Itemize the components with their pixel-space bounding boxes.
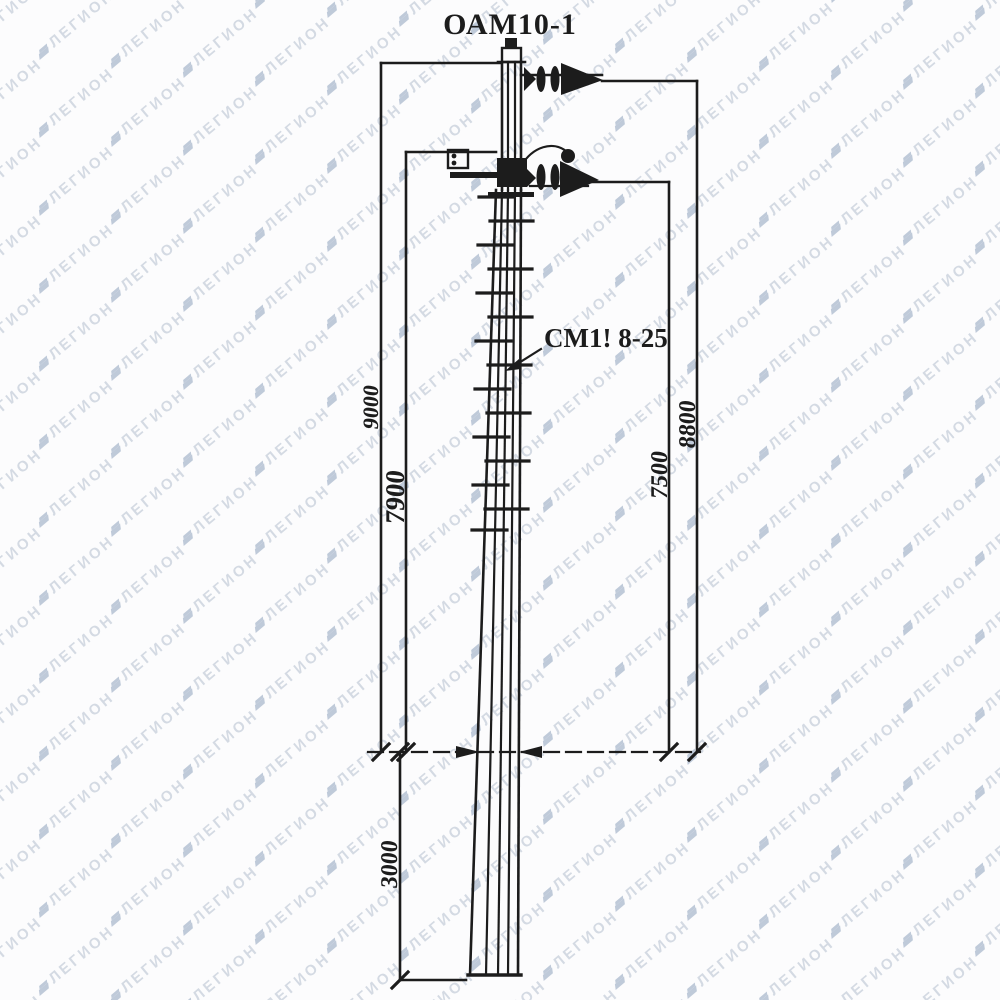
dimension-label-7900: 7900	[380, 469, 410, 526]
dimension-below-ground: 3000	[377, 744, 466, 988]
pole-step-ticks	[472, 197, 533, 530]
lower-strain-insulator-assembly	[448, 146, 599, 197]
dimension-right-inner: 7500	[588, 182, 677, 760]
dimension-label-7500: 7500	[647, 449, 673, 501]
dimension-label-3000: 3000	[377, 839, 403, 890]
dimension-label-8800: 8800	[675, 399, 701, 450]
disc-insulator	[537, 66, 546, 92]
scanned-drawing-page: ЛЕГИОНЛЕГИОНЛЕГИОНЛЕГИОНЛЕГИОНЛЕГИОНЛЕГИ…	[0, 0, 1000, 1000]
dimension-label-9000: 9000	[358, 383, 383, 430]
dimension-left-inner: 7900	[380, 152, 496, 760]
dead-end-clamp	[561, 63, 603, 95]
drawing-title: ОАМ10-1	[443, 8, 577, 41]
pole-technical-drawing: ОАМ10-1 9000 7900 8800 7500	[0, 0, 1000, 1000]
ground-level-line	[368, 746, 700, 758]
bracket-bar	[450, 172, 502, 178]
disc-insulator	[551, 66, 560, 92]
ground-arrow-right	[519, 746, 542, 758]
dead-end-clamp	[560, 161, 599, 197]
dimension-left-outer: 9000	[358, 63, 500, 760]
top-pin-insulator	[502, 38, 521, 62]
pole-body	[448, 38, 603, 975]
upper-strain-insulator-assembly	[521, 63, 603, 95]
jumper-wire	[521, 146, 566, 166]
part-label: СМ1! 8-25	[544, 323, 668, 353]
string-fitting	[561, 149, 575, 163]
